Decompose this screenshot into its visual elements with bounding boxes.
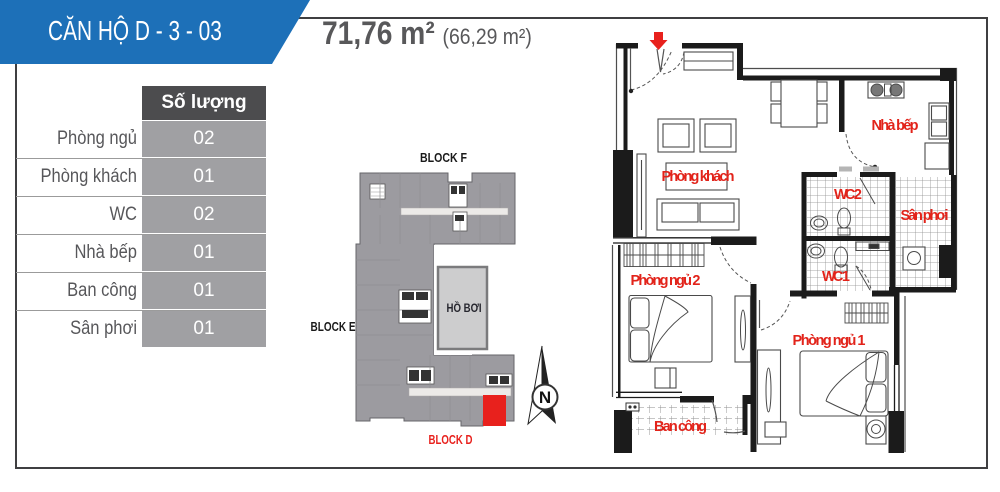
svg-text:Nhà bếp: Nhà bếp bbox=[872, 118, 919, 134]
svg-text:N: N bbox=[539, 388, 551, 407]
svg-text:BLOCK D: BLOCK D bbox=[429, 433, 473, 447]
svg-text:Phòng khách: Phòng khách bbox=[662, 169, 735, 185]
svg-text:Phòng ngủ 1: Phòng ngủ 1 bbox=[793, 333, 866, 349]
svg-text:BLOCK F: BLOCK F bbox=[420, 151, 467, 165]
svg-text:Sân phơi: Sân phơi bbox=[901, 208, 949, 224]
svg-text:Ban công: Ban công bbox=[654, 419, 707, 435]
svg-text:BLOCK E: BLOCK E bbox=[311, 320, 356, 334]
svg-text:WC 2: WC 2 bbox=[834, 187, 862, 203]
svg-text:Phòng ngủ 2: Phòng ngủ 2 bbox=[631, 273, 701, 289]
svg-text:WC 1: WC 1 bbox=[822, 269, 850, 285]
svg-text:HỒ BƠI: HỒ BƠI bbox=[447, 302, 482, 315]
